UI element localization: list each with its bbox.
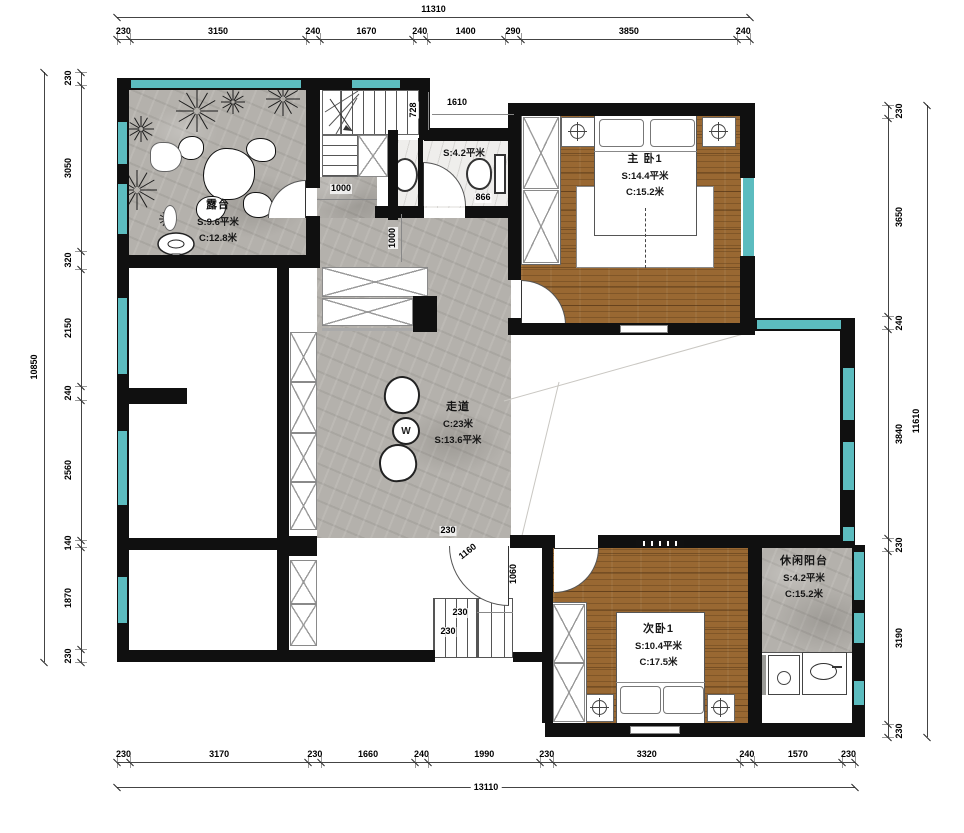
dim-label: 1400 <box>456 27 476 37</box>
lamp-icon <box>713 700 728 715</box>
dim-label: 3170 <box>209 750 229 760</box>
wall-segment <box>306 216 320 268</box>
window <box>843 442 854 490</box>
bathroom-label: S:4.2平米 <box>424 145 504 159</box>
window <box>854 613 864 643</box>
dim-label: 240 <box>305 27 320 37</box>
dim-total-line <box>117 17 750 18</box>
dim-total-label: 11610 <box>912 409 922 434</box>
bedroom2-window-sill <box>630 726 680 734</box>
wall-segment <box>465 206 514 218</box>
room-name: 露台 <box>170 196 266 212</box>
wall-segment <box>424 128 514 141</box>
wall-segment <box>542 548 553 723</box>
wall-segment <box>117 388 187 404</box>
window <box>118 184 127 234</box>
room-perimeter: C:23米 <box>424 416 492 430</box>
terrace-rock <box>246 138 276 162</box>
dim-label: 2150 <box>64 318 74 338</box>
terrace-rock <box>150 142 182 172</box>
cabinet-xbox <box>553 604 585 663</box>
cabinet-xbox <box>290 382 317 433</box>
interior-dim-bath_width: 1610 <box>446 98 468 108</box>
room-perimeter: C:15.2米 <box>760 586 848 600</box>
dim-label: 230 <box>841 750 856 760</box>
dim-label: 240 <box>739 750 754 760</box>
interior-dim-stair_tread_a: 230 <box>451 608 468 618</box>
pillow <box>599 119 644 147</box>
dim-total-label: 11310 <box>421 5 446 15</box>
dim-label: 230 <box>64 71 74 86</box>
dim-label: 3840 <box>895 424 905 444</box>
dim-label: 3850 <box>619 27 639 37</box>
table-mark: W <box>401 426 410 437</box>
cabinet-xbox <box>290 433 317 482</box>
master-window-sill <box>620 325 668 333</box>
wall-segment <box>510 535 555 548</box>
cabinet-xbox <box>553 663 585 722</box>
cabinet-xbox <box>523 190 559 263</box>
interior-dim-door_wall: 230 <box>439 526 456 536</box>
dim-label: 230 <box>539 750 554 760</box>
room-area: S:10.4平米 <box>601 638 716 652</box>
room-area: S:14.4平米 <box>582 168 708 182</box>
cabinet-xbox <box>322 267 428 297</box>
dim-label: 230 <box>307 750 322 760</box>
dim-label: 230 <box>895 104 905 119</box>
wall-segment <box>306 78 320 188</box>
wall-segment <box>418 138 423 208</box>
master-bedroom-label: 主 卧1 S:14.4平米 C:15.2米 <box>582 150 708 198</box>
corridor-label: 走道 C:23米 S:13.6平米 <box>424 398 492 446</box>
room-area: S:9.6平米 <box>170 214 266 228</box>
pillow <box>663 686 704 714</box>
dim-total-label: 13110 <box>471 783 502 793</box>
toilet-icon <box>466 158 492 190</box>
wall-segment <box>289 536 317 556</box>
lamp-icon <box>570 124 585 139</box>
wall-segment <box>413 296 437 332</box>
dim-label: 230 <box>895 723 905 738</box>
wall-segment <box>508 103 755 116</box>
washer-drum-icon <box>777 671 791 685</box>
wall-segment <box>840 318 855 545</box>
wall-segment <box>317 650 435 662</box>
center-dashed-line <box>645 208 646 268</box>
terrace-rock <box>203 148 255 200</box>
window <box>757 320 841 329</box>
dim-label: 230 <box>116 27 131 37</box>
dim-label: 1660 <box>358 750 378 760</box>
interior-dim-stair_tread_b: 230 <box>439 627 456 637</box>
window <box>118 577 127 623</box>
window <box>854 681 864 705</box>
pillow <box>620 686 661 714</box>
window <box>743 178 754 256</box>
interior-dim-door_leaf: 1060 <box>509 563 519 585</box>
wall-segment <box>375 206 424 218</box>
wall-segment <box>740 103 755 178</box>
balcony-label: 休闲阳台 S:4.2平米 C:15.2米 <box>760 552 848 600</box>
window <box>131 80 301 88</box>
room-area: S:4.2平米 <box>760 570 848 584</box>
window <box>352 80 400 88</box>
dim-label: 240 <box>736 27 751 37</box>
wall-segment <box>289 650 317 662</box>
cabinet-xbox <box>523 117 559 189</box>
dim-label: 3050 <box>64 158 74 178</box>
lamp-icon <box>711 124 726 139</box>
dim-line <box>117 39 750 40</box>
dim-label: 1670 <box>356 27 376 37</box>
dim-total-line <box>927 105 928 737</box>
dim-helper-line <box>432 114 514 115</box>
terrace-label: 露台 S:9.6平米 C:12.8米 <box>170 196 266 244</box>
room-name: 走道 <box>424 398 492 414</box>
dim-label: 2560 <box>64 460 74 480</box>
pillow <box>650 119 695 147</box>
bed-head-radiator <box>636 540 684 547</box>
interior-dim-corridor_width: 1000 <box>330 184 352 194</box>
toilet-tank-icon <box>494 154 506 194</box>
dim-label: 3650 <box>895 207 905 227</box>
wall-segment <box>545 723 865 737</box>
wall-segment <box>117 78 129 268</box>
dim-label: 3320 <box>637 750 657 760</box>
dim-line <box>117 762 855 763</box>
wall-segment <box>117 650 291 662</box>
bed-fold-line <box>616 682 705 683</box>
room-perimeter: C:17.5米 <box>601 654 716 668</box>
wall-segment <box>117 538 291 550</box>
wall-segment <box>277 268 289 660</box>
cabinet-xbox <box>290 560 317 604</box>
dim-label: 1990 <box>474 750 494 760</box>
cabinet-xbox <box>322 298 413 326</box>
dim-label: 1870 <box>64 588 74 608</box>
wall-segment <box>513 652 543 662</box>
window <box>118 431 127 505</box>
floor-plan: W 露台 S:9.6平米 C:12.8米 主 卧1 S:14.4平米 C:15.… <box>0 0 964 833</box>
dim-label: 240 <box>895 315 905 330</box>
lamp-icon <box>592 700 607 715</box>
faucet-icon <box>832 666 842 668</box>
dim-label: 320 <box>64 253 74 268</box>
window <box>854 552 864 600</box>
wall-segment <box>117 255 320 268</box>
cabinet-xbox <box>358 135 388 177</box>
cabinet-xbox <box>290 332 317 382</box>
dim-label: 140 <box>64 536 74 551</box>
stairs-split-line <box>477 612 513 613</box>
room-area: S:13.6平米 <box>424 432 492 446</box>
dim-label: 1570 <box>788 750 808 760</box>
round-table: W <box>392 417 420 445</box>
window <box>843 527 854 541</box>
interior-dim-toilet_width: 866 <box>474 193 491 203</box>
dim-label: 290 <box>505 27 520 37</box>
room-name: 休闲阳台 <box>760 552 848 568</box>
dim-helper-line <box>428 92 429 130</box>
interior-dim-bath_offset: 728 <box>409 101 419 118</box>
wall-segment <box>508 103 521 280</box>
window <box>118 122 127 164</box>
dim-helper-line <box>317 199 377 200</box>
bedroom2-label: 次卧1 S:10.4平米 C:17.5米 <box>601 620 716 668</box>
window <box>118 298 127 374</box>
dim-label: 230 <box>116 750 131 760</box>
dim-label: 240 <box>414 750 429 760</box>
room-perimeter: C:15.2米 <box>582 184 708 198</box>
interior-dim-corridor_depth: 1000 <box>388 227 398 249</box>
dim-total-label: 10850 <box>30 354 40 379</box>
room-area: S:4.2平米 <box>424 145 504 159</box>
dim-label: 240 <box>412 27 427 37</box>
room-name: 主 卧1 <box>582 150 708 166</box>
room-name: 次卧1 <box>601 620 716 636</box>
dim-label: 230 <box>895 537 905 552</box>
dim-helper-line <box>401 214 402 262</box>
dim-line <box>81 72 82 662</box>
dim-total-line <box>44 72 45 662</box>
dim-label: 230 <box>64 648 74 663</box>
dim-label: 3190 <box>895 628 905 648</box>
dim-label: 3150 <box>208 27 228 37</box>
dim-line <box>888 105 889 737</box>
cabinet-xbox <box>290 482 317 530</box>
cabinet-xbox <box>290 604 317 646</box>
room-perimeter: C:12.8米 <box>170 230 266 244</box>
dim-label: 240 <box>64 385 74 400</box>
window <box>843 368 854 420</box>
